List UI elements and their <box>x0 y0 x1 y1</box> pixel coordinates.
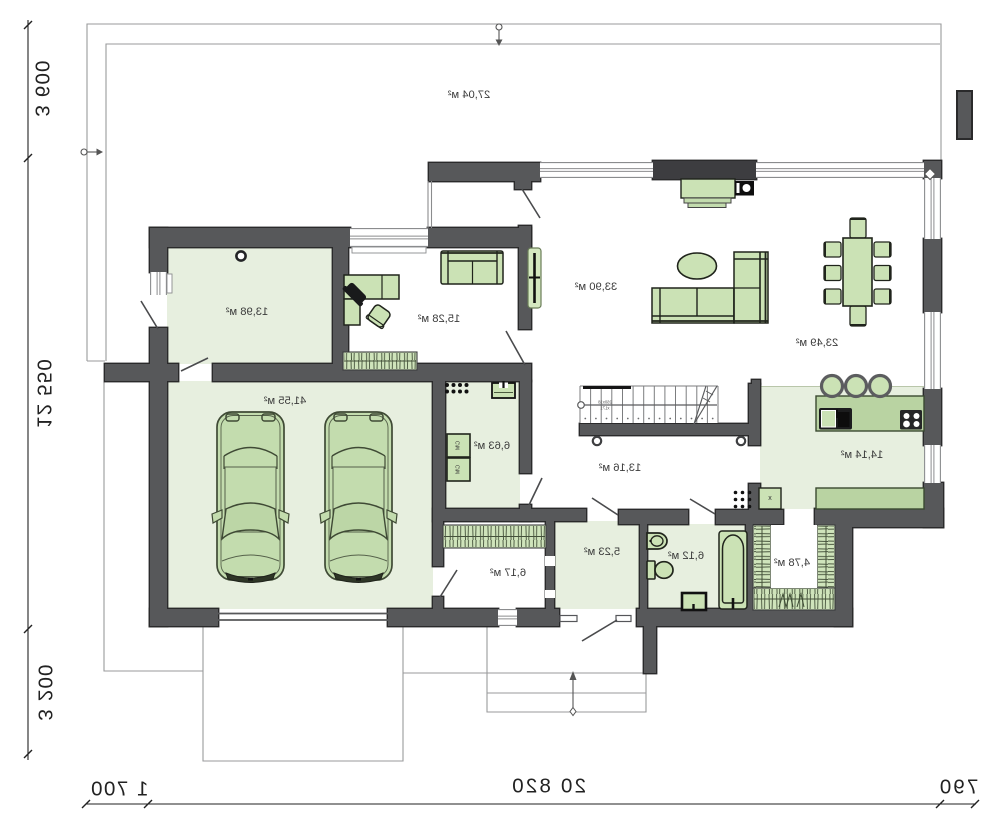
svg-text:260x18: 260x18 <box>597 400 611 405</box>
svg-text:790: 790 <box>938 776 979 799</box>
svg-text:3 600: 3 600 <box>31 59 54 116</box>
svg-text:6,17 м²: 6,17 м² <box>490 567 527 579</box>
svg-text:6,63 м²: 6,63 м² <box>474 440 511 452</box>
svg-text:33,90 м²: 33,90 м² <box>574 281 617 293</box>
svg-text:13,16 м²: 13,16 м² <box>598 462 641 474</box>
svg-text:С/М: С/М <box>456 441 462 450</box>
svg-text:4,78 м²: 4,78 м² <box>774 557 811 569</box>
svg-text:x: x <box>768 495 772 502</box>
svg-text:15,28 м²: 15,28 м² <box>417 313 460 325</box>
svg-text:14,14 м²: 14,14 м² <box>840 449 883 461</box>
svg-text:13,98 м²: 13,98 м² <box>225 306 268 318</box>
svg-text:23,49 м²: 23,49 м² <box>795 337 838 349</box>
svg-text:1 700: 1 700 <box>90 778 149 801</box>
svg-text:12 550: 12 550 <box>33 358 56 428</box>
svg-text:20 820: 20 820 <box>510 775 586 798</box>
svg-text:3 200: 3 200 <box>34 663 57 720</box>
svg-text:6,12 м²: 6,12 м² <box>668 550 705 562</box>
svg-text:41,55 м²: 41,55 м² <box>263 395 306 407</box>
svg-text:5,23 м²: 5,23 м² <box>584 546 621 558</box>
svg-text:С/М: С/М <box>456 465 462 474</box>
svg-text:x171: x171 <box>600 406 610 411</box>
svg-text:27,04 м²: 27,04 м² <box>447 89 490 101</box>
